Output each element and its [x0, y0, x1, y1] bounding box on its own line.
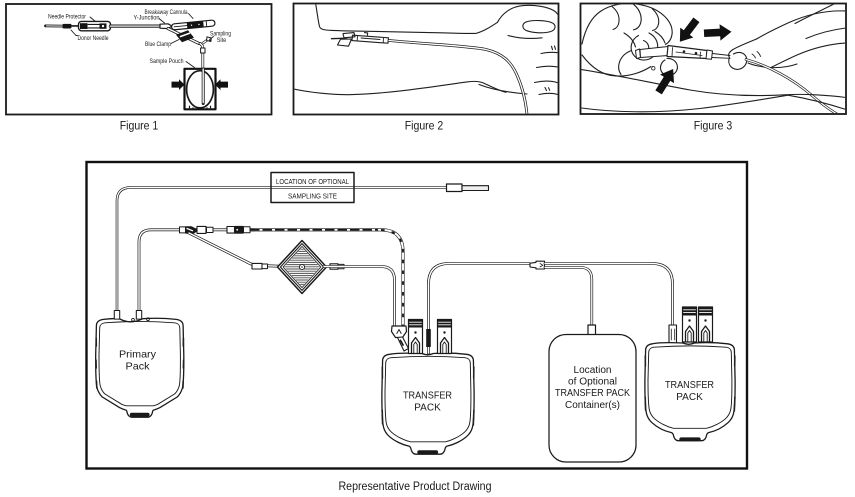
svg-text:Figure 3: Figure 3	[694, 119, 733, 133]
svg-text:Site: Site	[217, 38, 227, 44]
svg-text:Container(s): Container(s)	[565, 400, 620, 411]
svg-text:Needle Protector: Needle Protector	[48, 14, 86, 20]
svg-text:of Optional: of Optional	[568, 377, 617, 388]
svg-text:Figure 1: Figure 1	[120, 119, 159, 133]
svg-text:SAMPLING SITE: SAMPLING SITE	[288, 192, 337, 201]
svg-text:Figure 2: Figure 2	[405, 119, 444, 133]
svg-text:PACK: PACK	[676, 392, 703, 403]
svg-text:Blue Clamp: Blue Clamp	[145, 42, 172, 48]
svg-text:Location: Location	[574, 365, 612, 376]
svg-text:TRANSFER PACK: TRANSFER PACK	[555, 388, 630, 399]
svg-text:Y-Junction: Y-Junction	[134, 16, 160, 22]
svg-text:Primary: Primary	[119, 350, 157, 361]
svg-text:TRANSFER: TRANSFER	[665, 380, 714, 391]
svg-text:Donor Needle: Donor Needle	[78, 36, 110, 42]
svg-text:Pack: Pack	[126, 362, 151, 373]
svg-text:LOCATION OF OPTIONAL: LOCATION OF OPTIONAL	[276, 177, 349, 186]
svg-text:Representative Product Drawing: Representative Product Drawing	[339, 481, 492, 493]
svg-text:TRANSFER: TRANSFER	[403, 391, 452, 402]
svg-text:PACK: PACK	[414, 403, 441, 414]
svg-text:Sample Pouch: Sample Pouch	[150, 59, 184, 65]
